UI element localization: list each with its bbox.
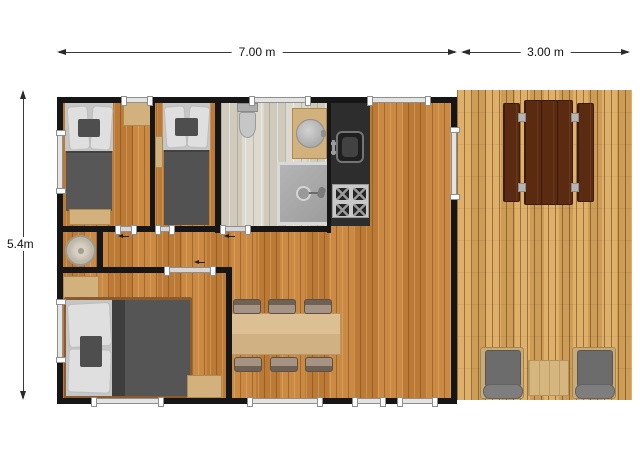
window xyxy=(57,300,63,362)
sink-basin xyxy=(342,137,358,157)
arrowhead-down-icon xyxy=(20,391,26,400)
picnic-bench xyxy=(577,103,594,202)
dining-chair xyxy=(234,357,262,372)
armchair-back-cushion xyxy=(577,350,613,387)
wall-bathroom-left xyxy=(215,97,221,233)
dining-chair xyxy=(233,299,261,314)
dining-chair xyxy=(268,299,296,314)
nightstand xyxy=(187,375,222,398)
stove xyxy=(332,184,369,218)
toilet-bowl xyxy=(239,112,256,138)
window xyxy=(248,398,322,404)
armchair-seat-cushion xyxy=(575,384,615,399)
wall-double-bedroom-right xyxy=(226,267,232,404)
accent-pillow xyxy=(175,118,198,136)
sliding-door-bedroom-right xyxy=(156,226,174,232)
deck-width-label: 3.00 m xyxy=(520,45,571,59)
double-bed xyxy=(64,297,192,399)
window xyxy=(122,97,152,103)
armchair-back-cushion xyxy=(485,350,521,387)
arrowhead-left-icon xyxy=(461,49,470,55)
deck-coffee-table xyxy=(528,360,569,396)
table-bracket xyxy=(518,113,526,122)
round-shower-drain xyxy=(78,248,84,254)
building-width-label: 7.00 m xyxy=(232,45,283,59)
single-bed-right xyxy=(163,103,210,224)
arrowhead-left-icon xyxy=(57,49,66,55)
window xyxy=(353,398,385,404)
foot-bench xyxy=(69,209,111,225)
table-bracket xyxy=(571,183,579,192)
deck-armchair-right xyxy=(572,347,616,399)
window xyxy=(250,97,310,103)
window xyxy=(368,97,430,103)
table-bracket xyxy=(571,113,579,122)
entrance-door xyxy=(451,128,457,199)
window xyxy=(57,131,63,193)
arrowhead-right-icon xyxy=(448,49,457,55)
door-direction-arrow-icon xyxy=(224,234,235,239)
building-height-label: 5.4m xyxy=(4,237,37,251)
dimension-line-deck-width: 3.00 m xyxy=(461,48,630,57)
bed-duvet xyxy=(66,151,112,211)
sliding-door-bedroom-left xyxy=(116,226,136,232)
accent-pillow xyxy=(80,336,102,367)
burner-icon xyxy=(353,188,366,200)
accent-pillow xyxy=(78,119,100,137)
side-shelf xyxy=(155,136,163,168)
wall-bedroom-divider xyxy=(150,97,155,232)
sliding-door-double-bedroom xyxy=(165,267,215,273)
wall-bathroom-kitchen xyxy=(327,97,331,233)
kitchen-sink xyxy=(336,131,364,163)
bed-pillow-area xyxy=(163,103,210,150)
window xyxy=(398,398,437,404)
table-bracket xyxy=(518,183,526,192)
bed-pillow-area xyxy=(66,300,112,396)
sliding-door-bathroom xyxy=(221,226,250,232)
window xyxy=(92,398,163,404)
bed-duvet xyxy=(125,300,190,396)
deck-armchair-left xyxy=(480,347,524,399)
sink-faucet-icon xyxy=(321,130,326,137)
burner-icon xyxy=(336,188,349,200)
arrowhead-right-icon xyxy=(621,49,630,55)
burner-icon xyxy=(336,204,349,216)
duvet-fold xyxy=(112,300,125,396)
dining-chair xyxy=(270,357,298,372)
wall-showerroom-right xyxy=(97,226,103,273)
burner-icon xyxy=(353,204,366,216)
dimension-line-building-width: 7.00 m xyxy=(57,48,457,57)
armchair-seat-cushion xyxy=(483,384,523,399)
door-direction-arrow-icon xyxy=(194,260,205,265)
door-direction-arrow-icon xyxy=(118,234,129,239)
dining-table xyxy=(228,313,341,355)
dining-chair xyxy=(304,299,332,314)
floorplan-canvas: 7.00 m 3.00 m 5.4m xyxy=(0,0,640,452)
wall-corridor-top xyxy=(57,226,217,232)
single-bed-left xyxy=(65,103,113,224)
arrowhead-up-icon xyxy=(20,90,26,99)
dining-chair xyxy=(305,357,333,372)
picnic-table xyxy=(524,100,573,205)
bed-duvet xyxy=(164,150,209,225)
bed-pillow-area xyxy=(65,103,113,151)
